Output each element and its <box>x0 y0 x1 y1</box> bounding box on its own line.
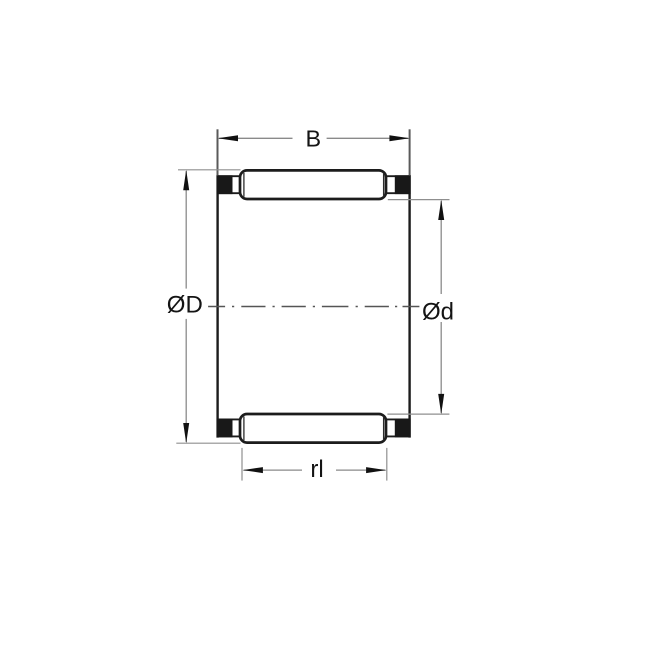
svg-text:rl: rl <box>310 456 323 483</box>
svg-text:Ød: Ød <box>422 299 454 326</box>
svg-text:ØD: ØD <box>167 292 203 319</box>
svg-text:B: B <box>305 126 321 152</box>
